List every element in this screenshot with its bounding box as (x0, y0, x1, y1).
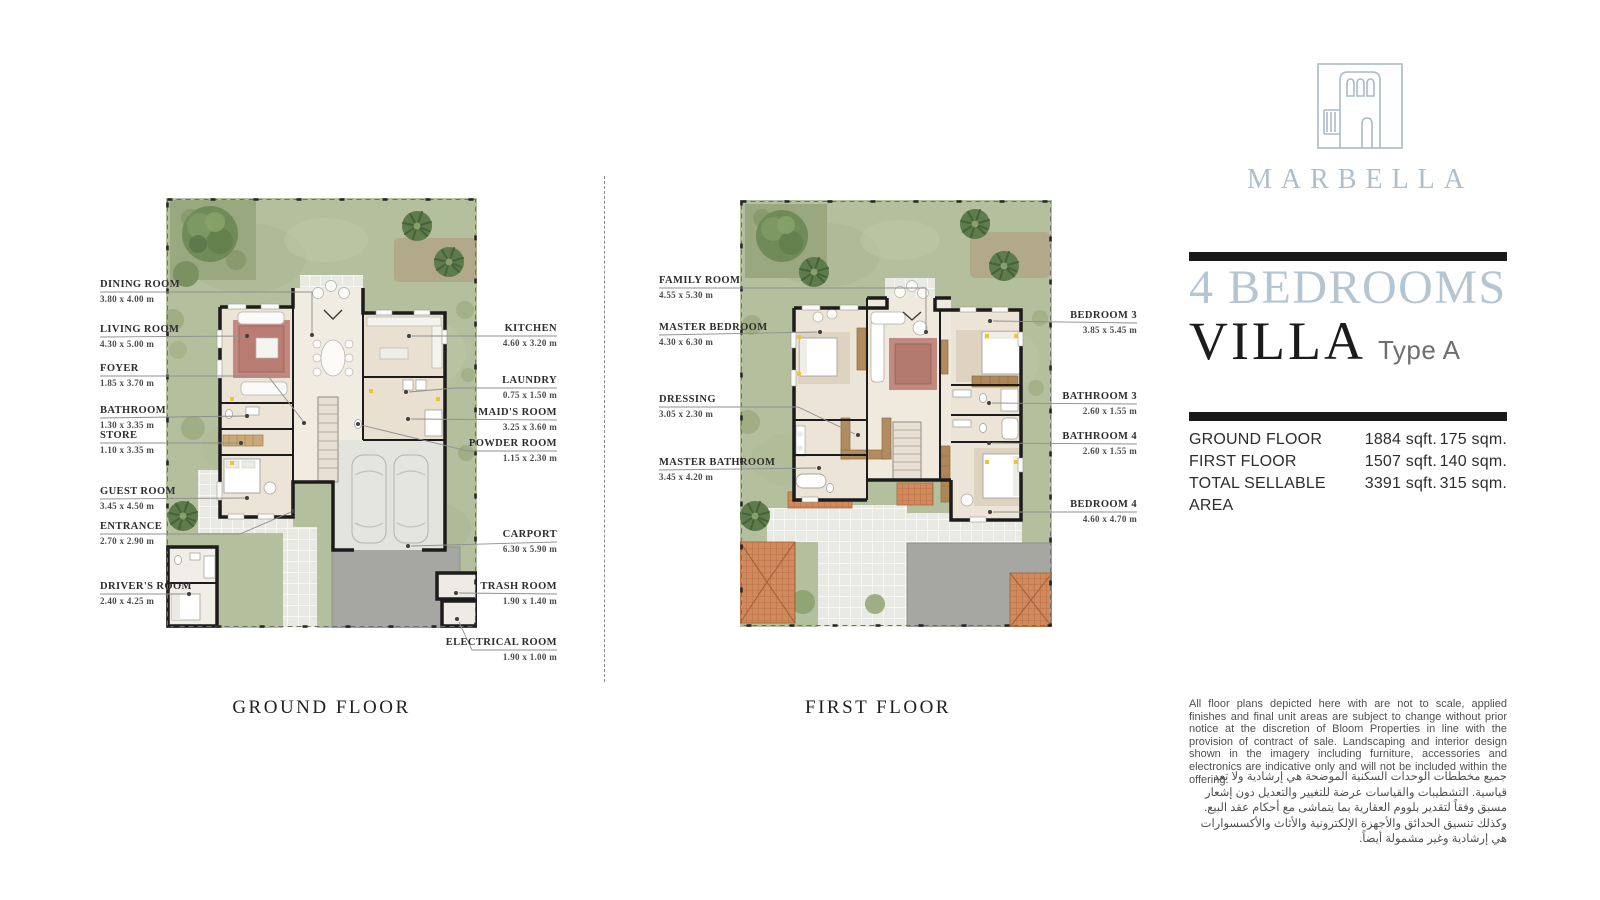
brand-name: MARBELLA (1180, 164, 1540, 196)
title-type-label: Type A (1378, 335, 1461, 365)
area-row-sqm: 315 sqm. (1437, 473, 1507, 517)
area-row-label: FIRST FLOOR (1189, 451, 1351, 473)
area-row-sqft: 3391 sqft. (1351, 473, 1437, 517)
area-row-sqm: 140 sqm. (1437, 451, 1507, 473)
disclaimer-arabic: جميع مخططات الوحدات السكنية الموضحة هي إ… (1189, 770, 1507, 848)
first-floor-caption: FIRST FLOOR (722, 697, 1034, 719)
area-table: GROUND FLOOR 1884 sqft. 175 sqm. FIRST F… (1189, 429, 1507, 517)
area-row-first: FIRST FLOOR 1507 sqft. 140 sqm. (1189, 451, 1507, 473)
area-row-label: GROUND FLOOR (1189, 429, 1351, 451)
area-row-sqft: 1507 sqft. (1351, 451, 1437, 473)
plans-divider-line (604, 176, 605, 682)
area-row-total: TOTAL SELLABLE AREA 3391 sqft. 315 sqm. (1189, 473, 1507, 517)
area-row-label: TOTAL SELLABLE AREA (1189, 473, 1351, 517)
floor-plan-brochure-page: DINING ROOM3.80 x 4.00 m LIVING ROOM4.30… (0, 0, 1600, 900)
area-row-ground: GROUND FLOOR 1884 sqft. 175 sqm. (1189, 429, 1507, 451)
area-row-sqm: 175 sqm. (1437, 429, 1507, 451)
title-divider-bar-top (1189, 252, 1507, 261)
title-divider-bar-bottom (1189, 412, 1507, 421)
marbella-logo-icon (1316, 62, 1404, 150)
ground-floor-caption: GROUND FLOOR (166, 697, 477, 719)
title-bedrooms: 4 BEDROOMS (1189, 265, 1519, 311)
area-row-sqft: 1884 sqft. (1351, 429, 1437, 451)
title-villa-text: VILLA (1189, 311, 1366, 371)
title-villa: VILLAType A (1189, 316, 1460, 375)
